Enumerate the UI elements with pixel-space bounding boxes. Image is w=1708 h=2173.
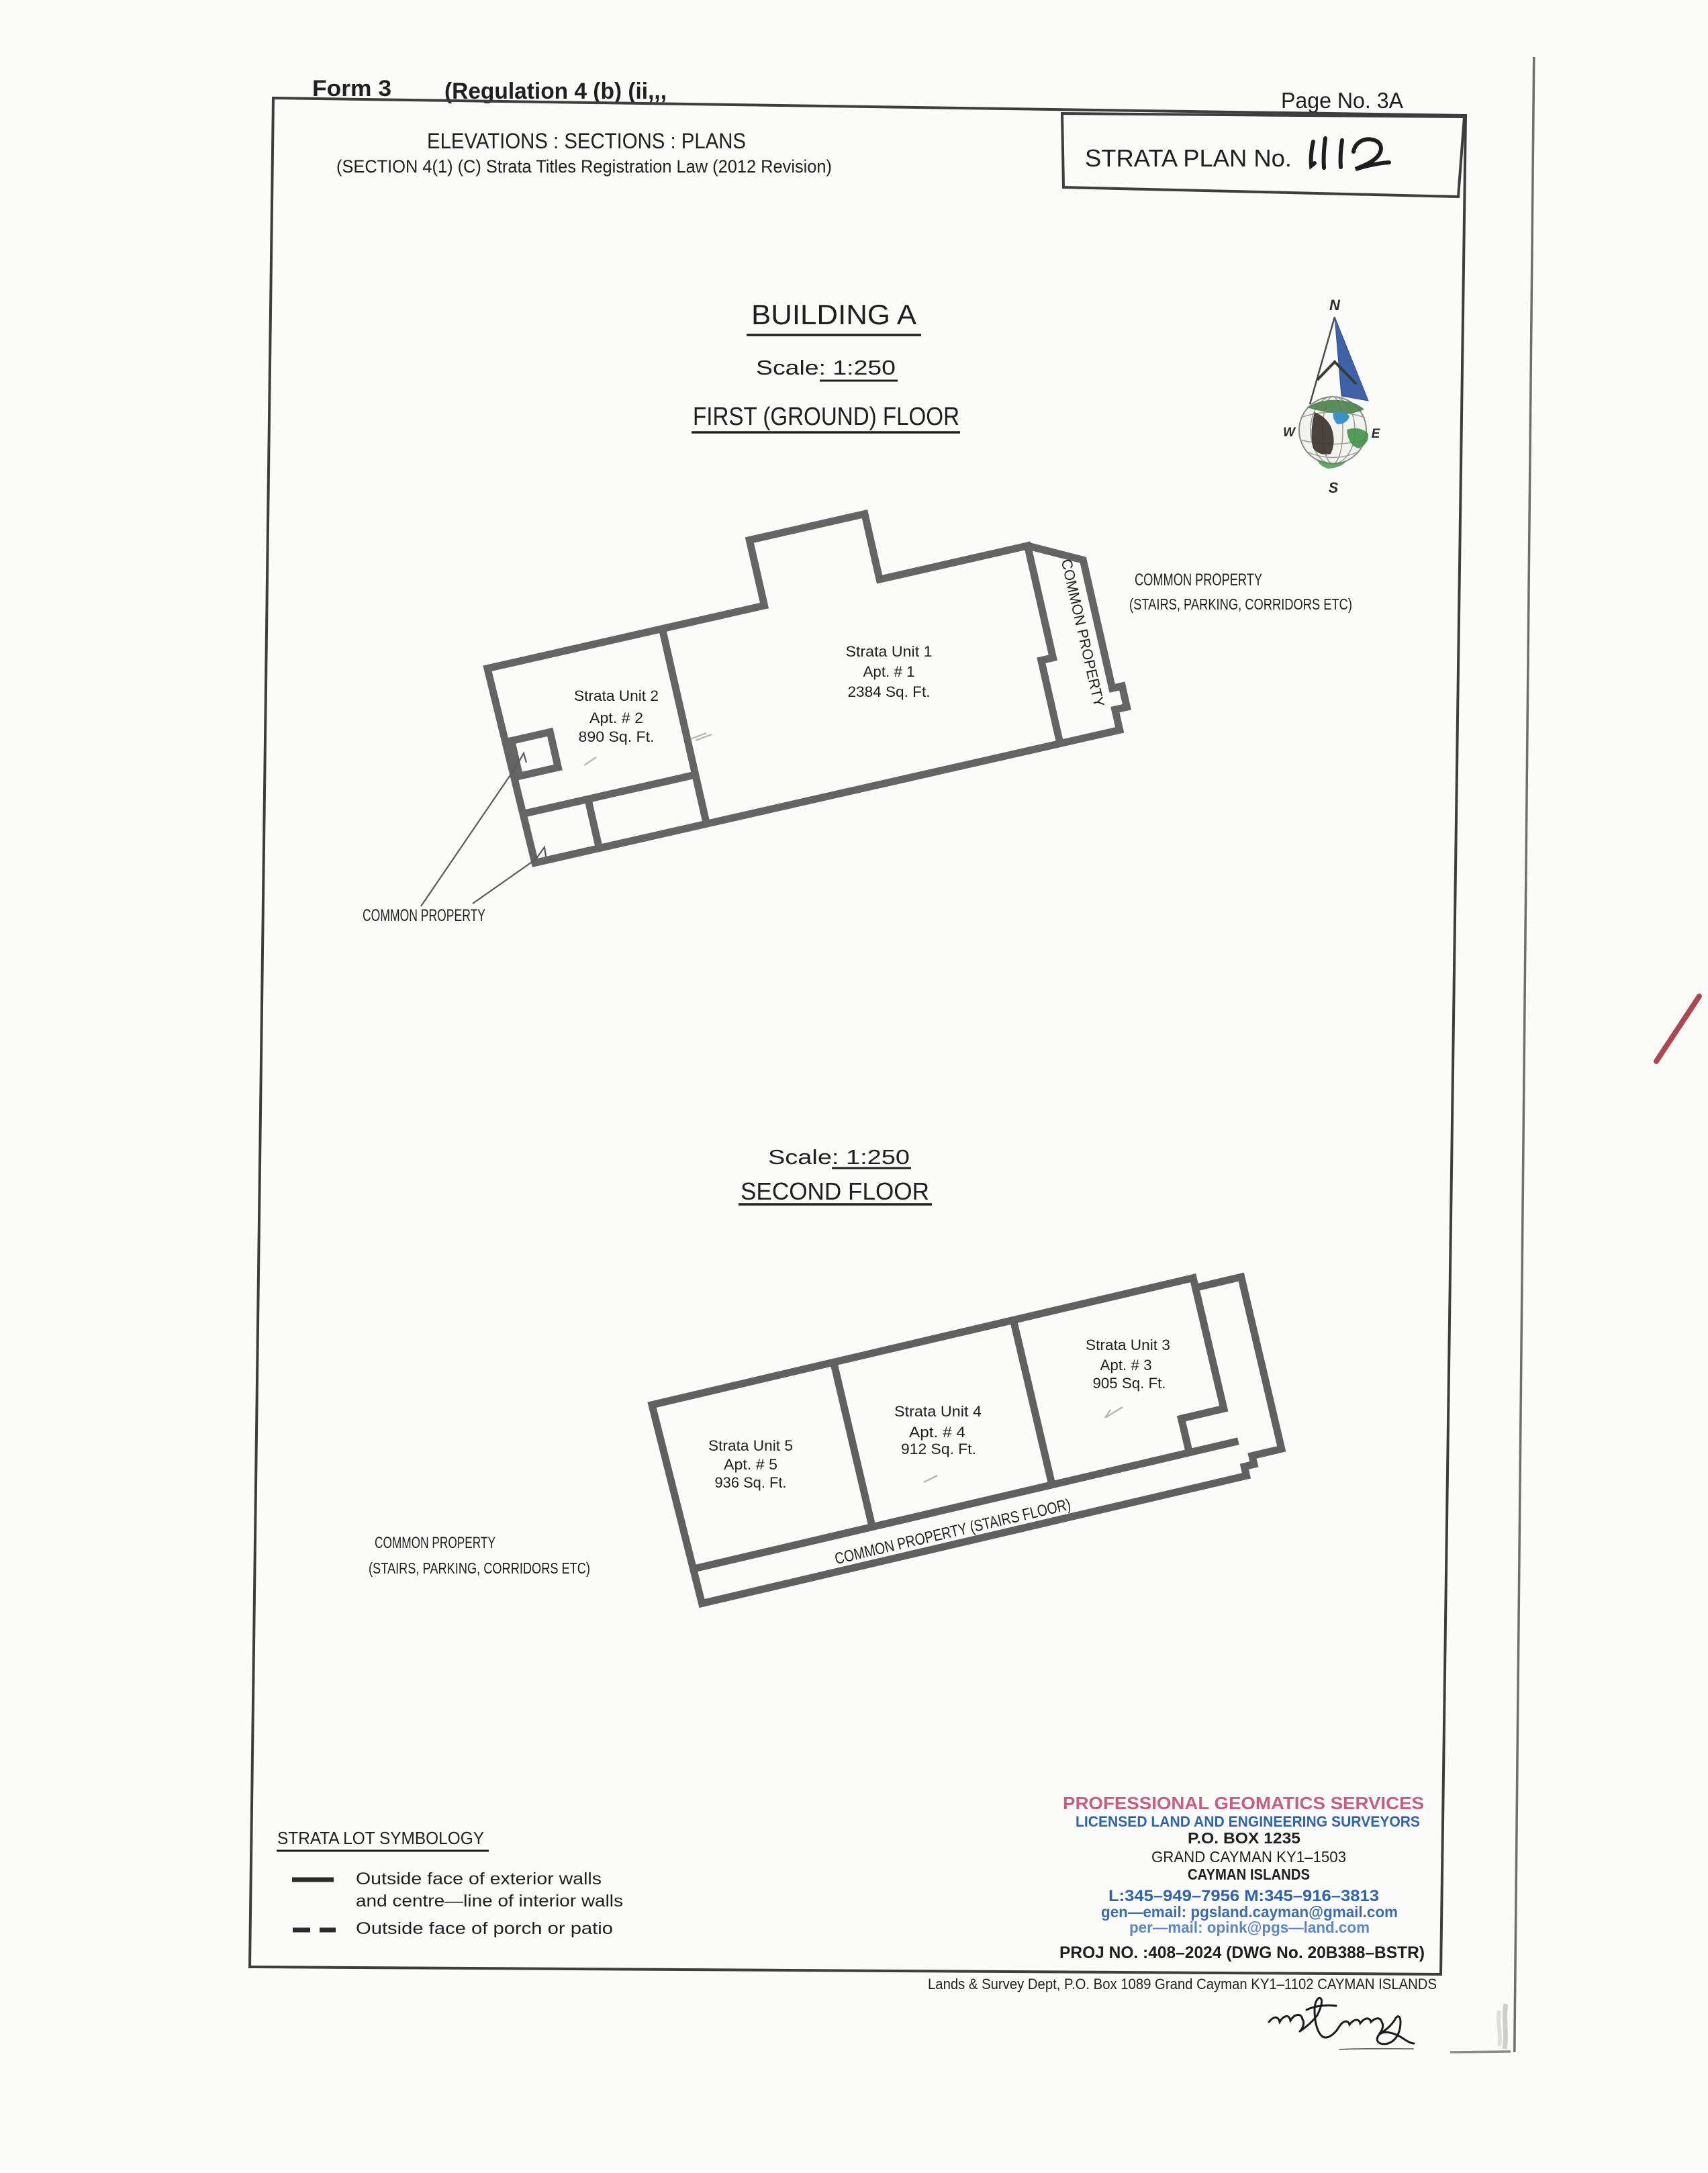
svg-text:Apt. # 3: Apt. # 3 bbox=[1100, 1357, 1152, 1373]
svg-text:Strata Unit 2: Strata Unit 2 bbox=[574, 687, 659, 704]
svg-text:905 Sq. Ft.: 905 Sq. Ft. bbox=[1093, 1375, 1166, 1392]
svg-text:(SECTION 4(1) (C) Strata Title: (SECTION 4(1) (C) Strata Titles Registra… bbox=[336, 156, 832, 177]
svg-text:N: N bbox=[1329, 297, 1341, 313]
svg-text:Scale: 1:250: Scale: 1:250 bbox=[768, 1145, 910, 1169]
svg-text:Strata Unit 1: Strata Unit 1 bbox=[846, 643, 933, 660]
svg-text:STRATA LOT SYMBOLOGY: STRATA LOT SYMBOLOGY bbox=[277, 1828, 484, 1848]
svg-text:GRAND CAYMAN KY1–1503: GRAND CAYMAN KY1–1503 bbox=[1151, 1848, 1346, 1866]
svg-text:Strata Unit 4: Strata Unit 4 bbox=[894, 1403, 982, 1420]
svg-text:LICENSED LAND AND ENGINEERING: LICENSED LAND AND ENGINEERING SURVEYORS bbox=[1076, 1813, 1420, 1830]
svg-text:912 Sq. Ft.: 912 Sq. Ft. bbox=[901, 1441, 976, 1457]
svg-text:Strata Unit 3: Strata Unit 3 bbox=[1086, 1337, 1170, 1353]
svg-text:Outside face of porch or patio: Outside face of porch or patio bbox=[356, 1919, 613, 1938]
svg-text:(STAIRS, PARKING, CORRIDORS ET: (STAIRS, PARKING, CORRIDORS ETC) bbox=[369, 1559, 590, 1577]
svg-text:Outside face of exterior walls: Outside face of exterior walls bbox=[356, 1870, 602, 1888]
svg-text:L:345–949–7956 M:345–916–3813: L:345–949–7956 M:345–916–3813 bbox=[1108, 1887, 1379, 1905]
svg-text:P.O. BOX 1235: P.O. BOX 1235 bbox=[1188, 1829, 1300, 1847]
svg-text:Apt. # 5: Apt. # 5 bbox=[724, 1456, 777, 1473]
svg-text:Apt. # 4: Apt. # 4 bbox=[909, 1424, 965, 1441]
svg-text:CAYMAN ISLANDS: CAYMAN ISLANDS bbox=[1188, 1866, 1310, 1883]
svg-text:936 Sq. Ft.: 936 Sq. Ft. bbox=[715, 1474, 787, 1491]
svg-text:FIRST (GROUND) FLOOR: FIRST (GROUND) FLOOR bbox=[693, 403, 959, 431]
svg-text:Scale: 1:250: Scale: 1:250 bbox=[756, 356, 896, 379]
svg-text:Strata Unit 5: Strata Unit 5 bbox=[708, 1437, 793, 1454]
svg-text:COMMON PROPERTY: COMMON PROPERTY bbox=[375, 1534, 495, 1552]
svg-text:Lands & Survey Dept, P.O. Box: Lands & Survey Dept, P.O. Box 1089 Grand… bbox=[928, 1976, 1437, 1992]
svg-text:(STAIRS, PARKING, CORRIDORS ET: (STAIRS, PARKING, CORRIDORS ETC) bbox=[1129, 595, 1352, 613]
svg-text:Page No. 3A: Page No. 3A bbox=[1281, 88, 1403, 113]
svg-text:PROJ NO. :408–2024 (DWG No. 2: PROJ NO. :408–2024 (DWG No. 20B388–BSTR) bbox=[1059, 1943, 1425, 1962]
svg-text:ELEVATIONS : SECTIONS : PLANS: ELEVATIONS : SECTIONS : PLANS bbox=[427, 129, 746, 153]
svg-text:Apt. # 2: Apt. # 2 bbox=[589, 710, 643, 726]
svg-text:BUILDING A: BUILDING A bbox=[751, 299, 916, 330]
svg-text:COMMON PROPERTY: COMMON PROPERTY bbox=[1135, 571, 1262, 589]
svg-text:W: W bbox=[1283, 426, 1296, 440]
svg-text:SECOND FLOOR: SECOND FLOOR bbox=[741, 1177, 929, 1205]
svg-text:2384 Sq. Ft.: 2384 Sq. Ft. bbox=[848, 683, 931, 700]
svg-text:Apt. # 1: Apt. # 1 bbox=[863, 663, 915, 680]
svg-text:S: S bbox=[1329, 479, 1339, 496]
svg-text:per—mail: opink@pgs—land.com: per—mail: opink@pgs—land.com bbox=[1129, 1919, 1370, 1936]
svg-text:STRATA PLAN No.: STRATA PLAN No. bbox=[1085, 144, 1292, 172]
svg-text:PROFESSIONAL GEOMATICS SERVICE: PROFESSIONAL GEOMATICS SERVICES bbox=[1063, 1793, 1424, 1813]
svg-text:E: E bbox=[1372, 427, 1381, 441]
svg-text:and centre—line of interior wa: and centre—line of interior walls bbox=[356, 1892, 623, 1911]
svg-text:COMMON PROPERTY: COMMON PROPERTY bbox=[363, 906, 485, 925]
svg-text:890 Sq. Ft.: 890 Sq. Ft. bbox=[579, 728, 655, 745]
